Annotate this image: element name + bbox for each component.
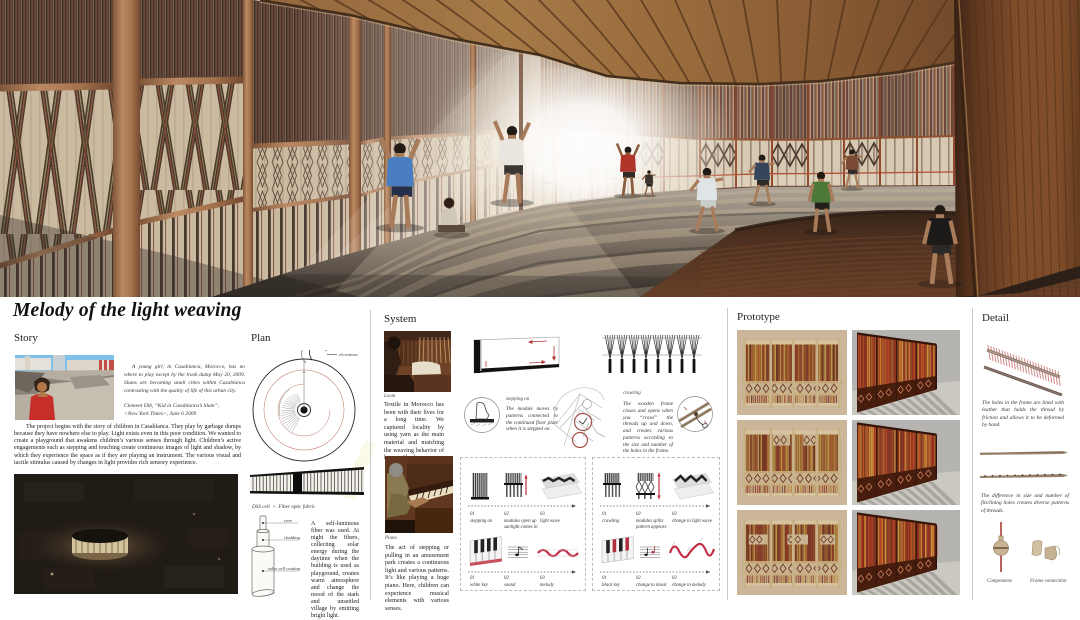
svg-text:white key: white key (470, 583, 489, 588)
svg-text:cladding: cladding (284, 535, 301, 540)
svg-text:02: 02 (504, 576, 509, 581)
svg-text:crawling: crawling (602, 519, 620, 524)
svg-text:light wave: light wave (540, 519, 561, 524)
svg-text:change in light wave: change in light wave (672, 519, 713, 524)
svg-text:01: 01 (602, 576, 607, 581)
svg-text:black key: black key (602, 583, 621, 588)
svg-text:sunlight comes in: sunlight comes in (504, 525, 538, 530)
svg-text:pattern appears: pattern appears (635, 525, 667, 530)
svg-text:modules splits: modules splits (636, 519, 663, 524)
svg-text:sound: sound (504, 583, 516, 588)
svg-text:modules open up: modules open up (504, 519, 537, 524)
svg-text:solar cell coating: solar cell coating (268, 566, 301, 571)
svg-text:02: 02 (636, 512, 641, 517)
svg-text:change to music: change to music (636, 583, 668, 588)
svg-text:03: 03 (540, 512, 545, 517)
svg-text:01: 01 (470, 512, 475, 517)
svg-text:02: 02 (636, 576, 641, 581)
svg-text:03: 03 (672, 576, 677, 581)
svg-text:02: 02 (504, 512, 509, 517)
svg-text:03: 03 (540, 576, 545, 581)
svg-text:core: core (284, 518, 292, 523)
svg-text:melody: melody (540, 583, 555, 588)
svg-text:01: 01 (602, 512, 607, 517)
svg-text:03: 03 (672, 512, 677, 517)
svg-text:01: 01 (470, 576, 475, 581)
svg-text:stepping on: stepping on (470, 519, 493, 524)
svg-text:change in melody: change in melody (672, 583, 707, 588)
